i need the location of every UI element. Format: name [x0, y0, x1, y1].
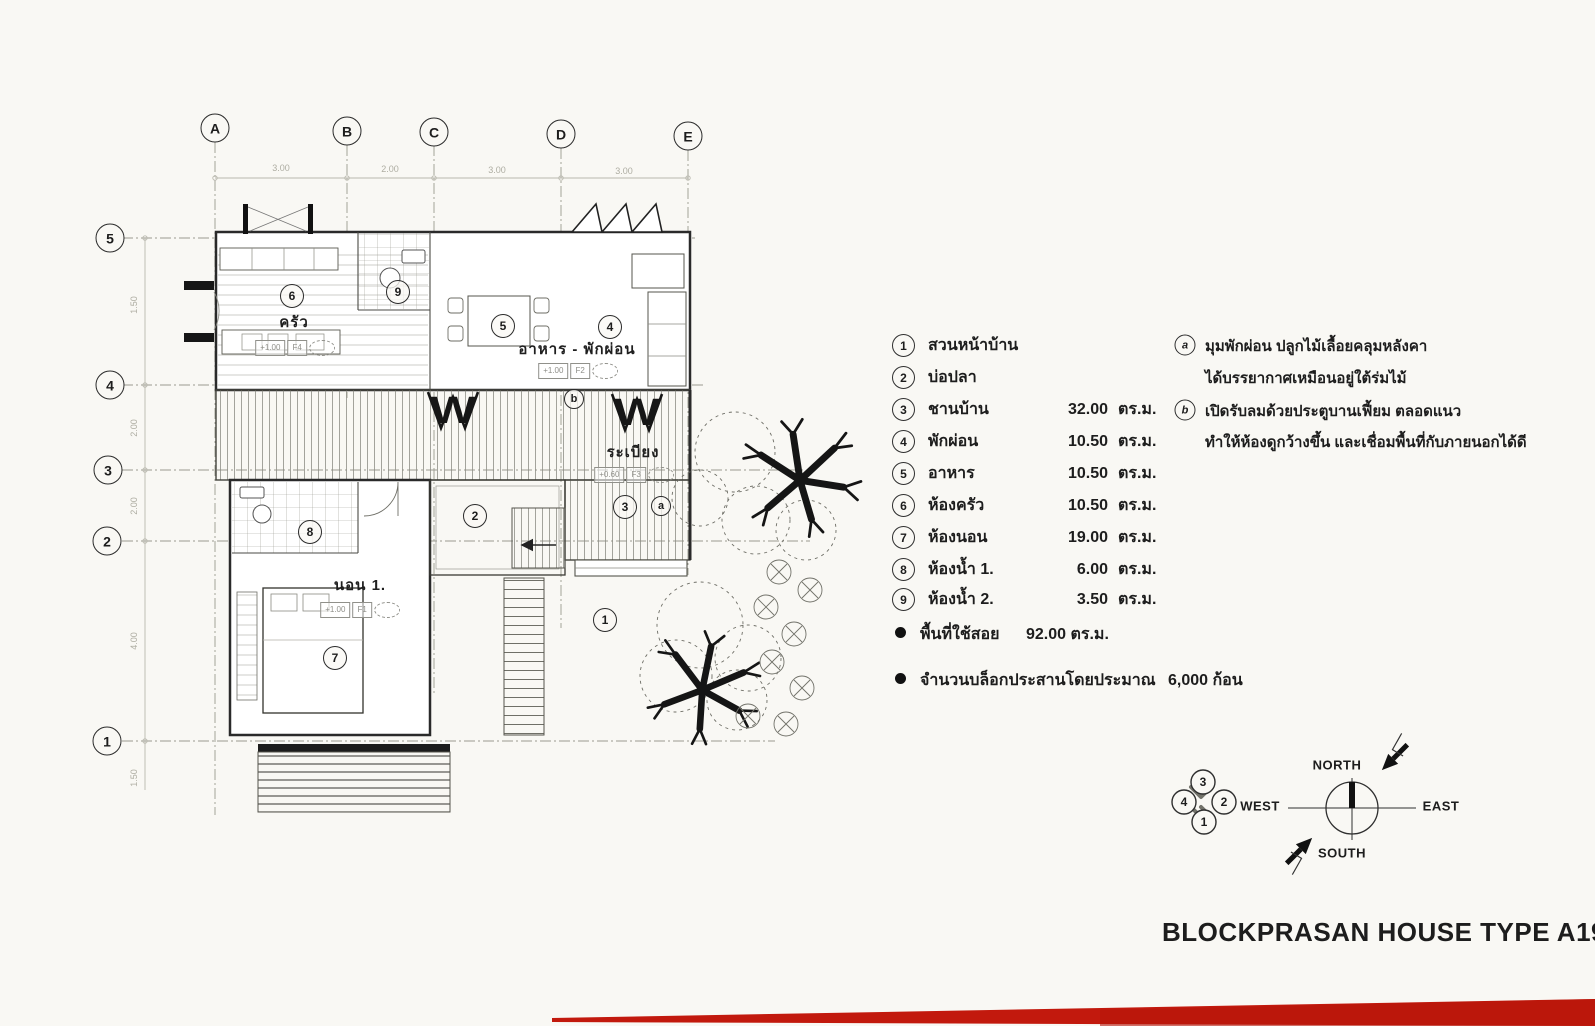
legend-unit: ตร.ม.	[1108, 493, 1168, 518]
column-dim-bc: 2.00	[381, 164, 399, 174]
row-dim-54: 1.50	[129, 296, 139, 314]
floor-plan-drawing	[0, 0, 1595, 1026]
plan-marker-7-bedroom: 7	[323, 646, 347, 670]
dining-living-label: อาหาร - พักผ่อน	[518, 337, 635, 361]
bedroom-level-value: +1.00	[320, 602, 350, 618]
grid-column-c: C	[420, 118, 449, 147]
usable-area-value: 92.00 ตร.ม.	[1026, 622, 1109, 647]
plan-marker-2-pond: 2	[463, 504, 487, 528]
legend-number: 8	[892, 558, 915, 581]
living-floor-code: F2	[570, 363, 589, 379]
row-dim-43: 2.00	[129, 419, 139, 437]
compass-west-label: WEST	[1240, 799, 1280, 814]
legend-row-6: 6 ห้องครัว 10.50 ตร.ม.	[892, 493, 1168, 517]
bedroom-level-marker: +1.00 F1	[320, 602, 400, 618]
cluster-number-1: 1	[1201, 815, 1208, 829]
plan-marker-9-bath2: 9	[386, 280, 410, 304]
level-ellipse	[309, 340, 335, 356]
legend-row-7: 7 ห้องนอน 19.00 ตร.ม.	[892, 525, 1168, 549]
legend-unit: ตร.ม.	[1108, 525, 1168, 550]
legend-name: ห้องน้ำ 1.	[928, 557, 1050, 582]
bullet-icon	[895, 673, 906, 684]
legend-unit: ตร.ม.	[1108, 397, 1168, 422]
legend-area: 6.00	[1050, 561, 1108, 579]
terrace-level-value: +0.60	[594, 467, 624, 483]
column-dim-ab: 3.00	[272, 163, 290, 173]
note-a-line2: ได้บรรยากาศเหมือนอยู่ใต้ร่มไม้	[1205, 366, 1407, 390]
legend-name: ห้องนอน	[928, 525, 1050, 550]
cluster-number-2: 2	[1221, 795, 1228, 809]
grid-row-3: 3	[94, 456, 123, 485]
bullet-icon	[895, 627, 906, 638]
grid-row-2: 2	[93, 527, 122, 556]
level-ellipse	[374, 602, 400, 618]
legend-unit: ตร.ม.	[1108, 587, 1168, 612]
level-ellipse	[592, 363, 618, 379]
kitchen-level-marker: +1.00 F4	[255, 340, 335, 356]
scanned-floor-plan-page: A B C D E 3.00 2.00 3.00 3.00 5 4 3 2 1 …	[0, 0, 1595, 1026]
note-marker-b: b	[1175, 400, 1196, 421]
grid-row-4: 4	[96, 371, 125, 400]
plan-marker-1-garden: 1	[593, 608, 617, 632]
legend-row-5: 5 อาหาร 10.50 ตร.ม.	[892, 461, 1168, 485]
usable-area-label: พื้นที่ใช้สอย	[920, 622, 999, 647]
plan-marker-4-living: 4	[598, 315, 622, 339]
plan-marker-5-dining: 5	[491, 314, 515, 338]
column-dim-de: 3.00	[615, 166, 633, 176]
note-a-line1: มุมพักผ่อน ปลูกไม้เลื้อยคลุมหลังคา	[1205, 334, 1427, 358]
legend-name: สวนหน้าบ้าน	[928, 333, 1050, 358]
legend-row-9: 9 ห้องน้ำ 2. 3.50 ตร.ม.	[892, 587, 1168, 611]
legend-row-8: 8 ห้องน้ำ 1. 6.00 ตร.ม.	[892, 557, 1168, 581]
drawing-title: BLOCKPRASAN HOUSE TYPE A19.	[1162, 917, 1595, 948]
legend-area: 10.50	[1050, 497, 1108, 515]
legend-number: 2	[892, 366, 915, 389]
legend-name: ห้องน้ำ 2.	[928, 587, 1050, 612]
legend-number: 3	[892, 398, 915, 421]
column-dim-cd: 3.00	[488, 165, 506, 175]
block-count-value: 6,000 ก้อน	[1168, 668, 1243, 693]
note-b-line2: ทำให้ห้องดูกว้างขึ้น และเชื่อมพื้นที่กับ…	[1205, 430, 1527, 454]
folding-door-symbol: W	[430, 392, 477, 430]
grid-row-5: 5	[96, 224, 125, 253]
grid-column-e: E	[674, 122, 703, 151]
terrace-label: ระเบียง	[607, 440, 660, 464]
row-dim-below-1: 1.50	[129, 769, 139, 787]
legend-row-3: 3 ชานบ้าน 32.00 ตร.ม.	[892, 397, 1168, 421]
grid-column-d: D	[547, 120, 576, 149]
legend-area: 19.00	[1050, 529, 1108, 547]
plan-marker-6-kitchen: 6	[280, 284, 304, 308]
legend-number: 7	[892, 526, 915, 549]
legend-unit: ตร.ม.	[1108, 461, 1168, 486]
cluster-number-3: 3	[1200, 775, 1207, 789]
legend-number: 6	[892, 494, 915, 517]
legend-unit: ตร.ม.	[1108, 429, 1168, 454]
legend-name: ห้องครัว	[928, 493, 1050, 518]
terrace-level-marker: +0.60 F3	[594, 467, 674, 483]
legend-name: ชานบ้าน	[928, 397, 1050, 422]
legend-row-1: 1 สวนหน้าบ้าน	[892, 333, 1168, 357]
legend-number: 1	[892, 334, 915, 357]
kitchen-level-value: +1.00	[255, 340, 285, 356]
plan-marker-a: a	[651, 496, 671, 516]
living-level-value: +1.00	[538, 363, 568, 379]
level-ellipse	[648, 467, 674, 483]
legend-unit: ตร.ม.	[1108, 557, 1168, 582]
row-dim-21: 4.00	[129, 632, 139, 650]
grid-column-b: B	[333, 117, 362, 146]
plan-marker-b: b	[564, 389, 584, 409]
legend-number: 9	[892, 588, 915, 611]
living-level-marker: +1.00 F2	[538, 363, 618, 379]
folding-door-symbol: W	[614, 394, 661, 432]
legend-area: 3.50	[1050, 591, 1108, 609]
note-b-line1: เปิดรับลมด้วยประตูบานเฟี้ยม ตลอดแนว	[1205, 399, 1461, 423]
bedroom-floor-code: F1	[352, 602, 371, 618]
legend-number: 5	[892, 462, 915, 485]
plan-marker-3-terrace: 3	[613, 495, 637, 519]
legend-number: 4	[892, 430, 915, 453]
kitchen-floor-code: F4	[287, 340, 306, 356]
legend-name: บ่อปลา	[928, 365, 1050, 390]
compass-north-label: NORTH	[1313, 758, 1362, 773]
cluster-number-4: 4	[1181, 795, 1188, 809]
grid-column-a: A	[201, 114, 230, 143]
legend-name: พักผ่อน	[928, 429, 1050, 454]
legend-row-2: 2 บ่อปลา	[892, 365, 1168, 389]
bedroom-label: นอน 1.	[334, 573, 386, 597]
legend-name: อาหาร	[928, 461, 1050, 486]
terrace-floor-code: F3	[626, 467, 645, 483]
legend-area: 10.50	[1050, 433, 1108, 451]
kitchen-label: ครัว	[279, 310, 309, 334]
legend-area: 32.00	[1050, 401, 1108, 419]
legend-row-4: 4 พักผ่อน 10.50 ตร.ม.	[892, 429, 1168, 453]
compass-east-label: EAST	[1423, 799, 1460, 814]
row-dim-32: 2.00	[129, 497, 139, 515]
legend-area: 10.50	[1050, 465, 1108, 483]
note-marker-a: a	[1175, 335, 1196, 356]
red-footer-band-dark	[1100, 999, 1595, 1026]
plan-marker-8-bath1: 8	[298, 520, 322, 544]
block-count-label: จำนวนบล็อกประสานโดยประมาณ	[920, 668, 1156, 693]
compass-south-label: SOUTH	[1318, 846, 1366, 861]
grid-row-1: 1	[93, 727, 122, 756]
